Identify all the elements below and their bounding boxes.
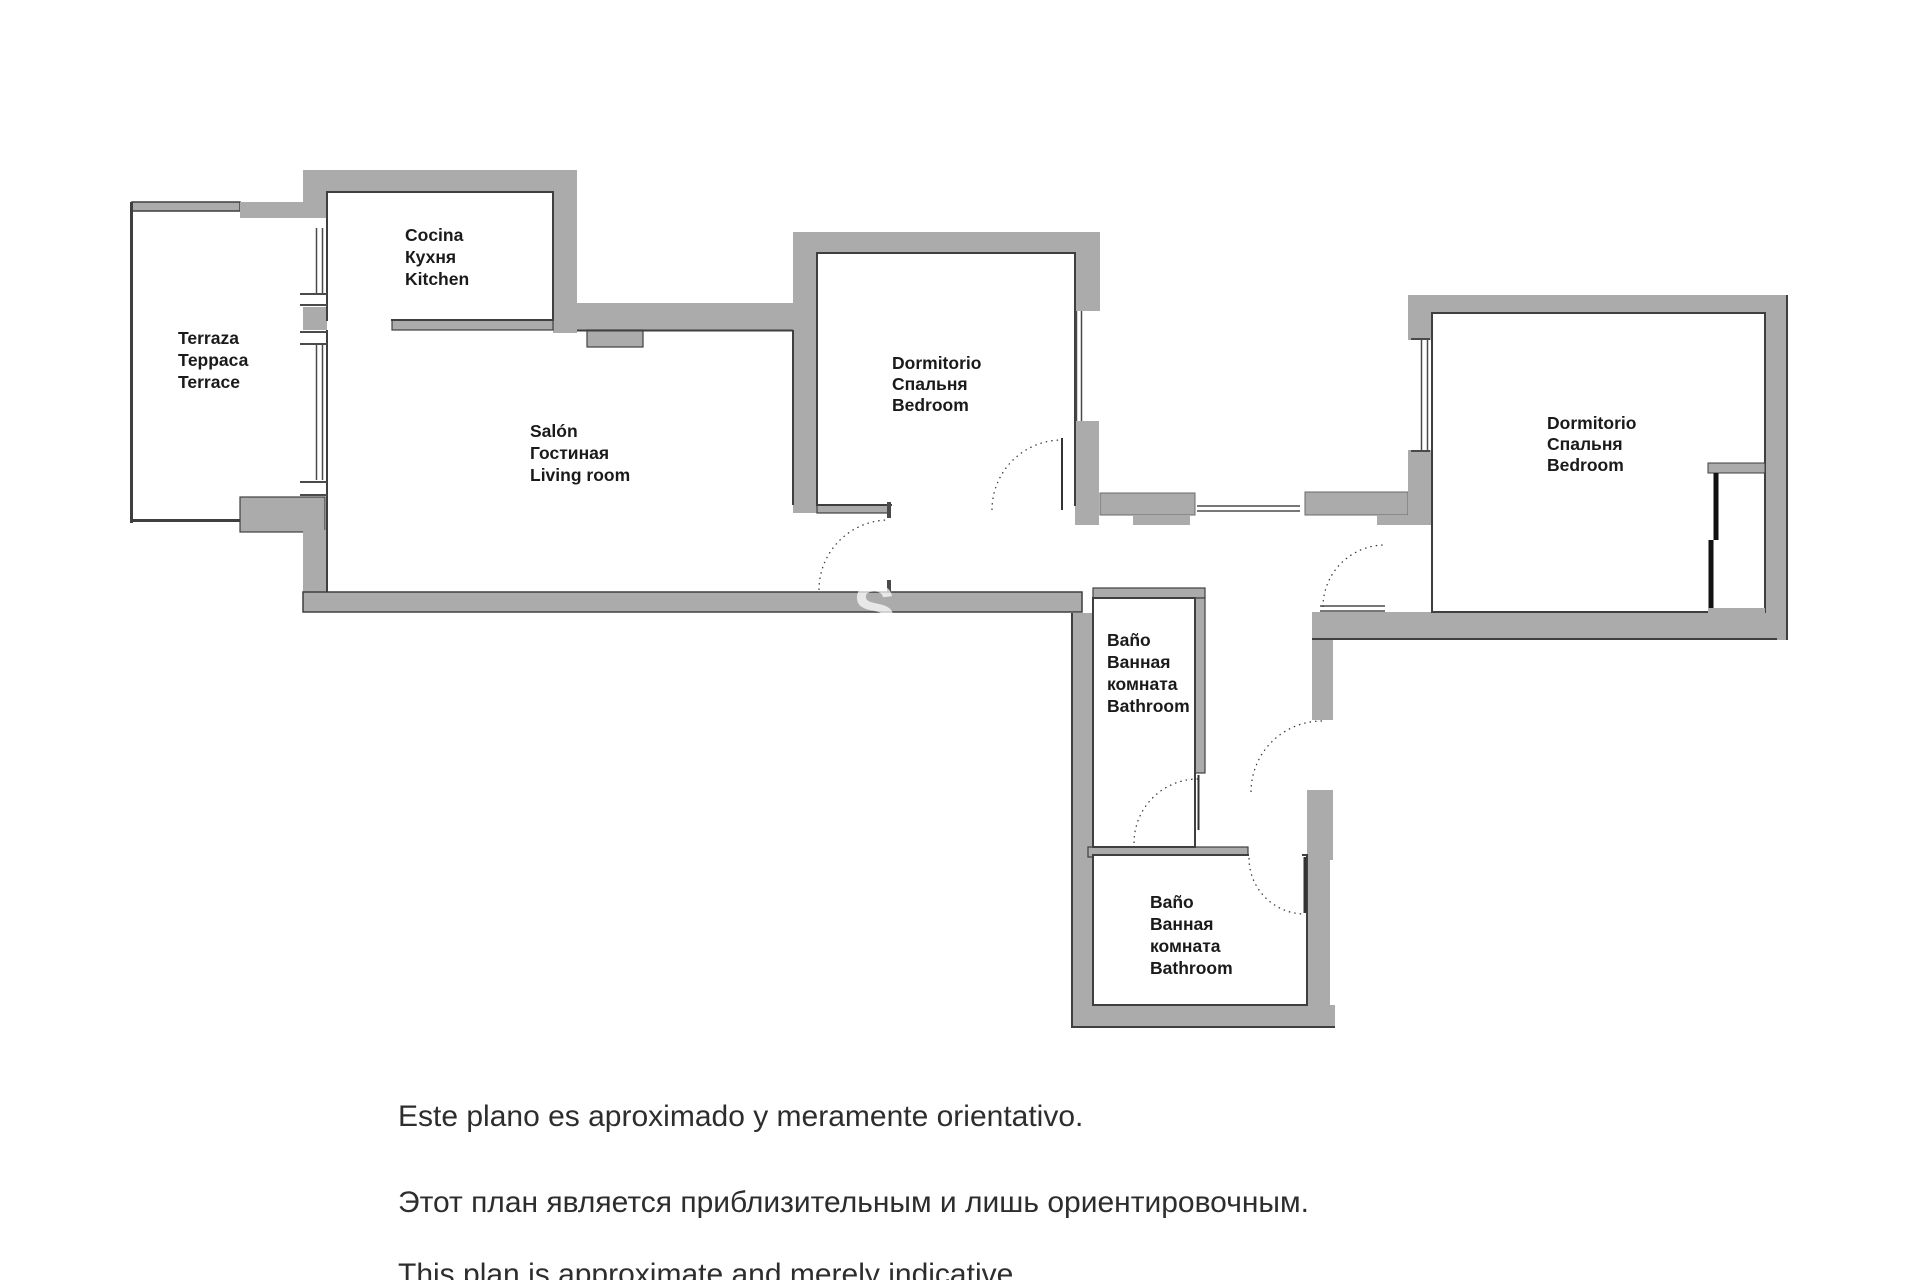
wall — [303, 307, 327, 330]
wall — [587, 330, 643, 347]
bedroom1-label: Dormitorio — [892, 353, 981, 373]
bathroom1-label: Baño — [1107, 630, 1151, 650]
bedroom2-entry-arc — [1251, 721, 1322, 792]
wall — [1408, 295, 1787, 313]
wall — [1133, 515, 1190, 525]
terrace-label: Terraza — [178, 328, 239, 348]
wall — [1093, 588, 1205, 598]
wall — [303, 170, 327, 218]
bathroom1-label: Ванная — [1107, 652, 1170, 672]
wall — [1072, 1005, 1335, 1028]
disclaimer: Este plano es aproximado y meramente ori… — [398, 1100, 1309, 1280]
disclaimer-ru: Этот план является приблизительным и лиш… — [398, 1186, 1309, 1219]
wardrobe-step — [1708, 608, 1765, 615]
wall — [303, 592, 1082, 612]
wall — [817, 505, 890, 513]
disclaimer-es: Este plano es aproximado y meramente ori… — [398, 1100, 1083, 1133]
terrace-label: Терраса — [178, 350, 249, 370]
floor-plan-drawing: S Terraza Терраса Terrace Cocina Кухня K… — [0, 0, 1920, 1280]
living-room-label: Salón — [530, 421, 578, 441]
wall — [303, 530, 327, 594]
wall — [1072, 613, 1093, 1028]
wall — [1408, 295, 1432, 340]
kitchen-label: Cocina — [405, 225, 464, 245]
terrace-label: Terrace — [178, 372, 240, 392]
wall — [793, 232, 1100, 253]
bathroom1-label: комната — [1107, 674, 1178, 694]
wall — [1075, 232, 1100, 311]
bedroom1-label: Bedroom — [892, 395, 969, 415]
bathroom2-label: Ванная — [1150, 914, 1213, 934]
wall — [1765, 313, 1788, 640]
bedroom2-label: Спальня — [1547, 434, 1623, 454]
bedroom2-label: Dormitorio — [1547, 413, 1636, 433]
nook-door-arc — [1323, 545, 1385, 607]
kitchen-label: Кухня — [405, 247, 456, 267]
wardrobe-shelf — [1708, 463, 1765, 473]
living-room-label: Living room — [530, 465, 630, 485]
wall — [1195, 598, 1205, 773]
watermark-letter: S — [853, 572, 896, 644]
wall — [1100, 493, 1195, 515]
disclaimer-en: This plan is approximate and merely indi… — [398, 1258, 1022, 1280]
wall — [1075, 421, 1099, 525]
bathroom2-label: Bathroom — [1150, 958, 1233, 978]
wall — [392, 320, 553, 330]
wall — [1408, 450, 1432, 525]
floor-plan: S Terraza Терраса Terrace Cocina Кухня K… — [0, 0, 1920, 1280]
bedroom1-label: Спальня — [892, 374, 968, 394]
wall — [1377, 515, 1408, 525]
wall — [132, 202, 240, 211]
wall — [577, 303, 793, 330]
wall — [793, 232, 817, 513]
wall — [1307, 857, 1330, 1005]
wall — [1307, 790, 1333, 860]
living-room-label: Гостиная — [530, 443, 609, 463]
wall — [240, 202, 303, 218]
wall — [303, 170, 577, 192]
bathroom2-label: Baño — [1150, 892, 1194, 912]
wall — [1312, 612, 1777, 640]
wall — [240, 497, 325, 532]
bathroom1-label: Bathroom — [1107, 696, 1190, 716]
kitchen-label: Kitchen — [405, 269, 469, 289]
bathroom2-label: комната — [1150, 936, 1221, 956]
wall — [553, 192, 577, 333]
wall — [1305, 492, 1408, 515]
bedroom2-label: Bedroom — [1547, 455, 1624, 475]
wall — [1312, 612, 1333, 720]
